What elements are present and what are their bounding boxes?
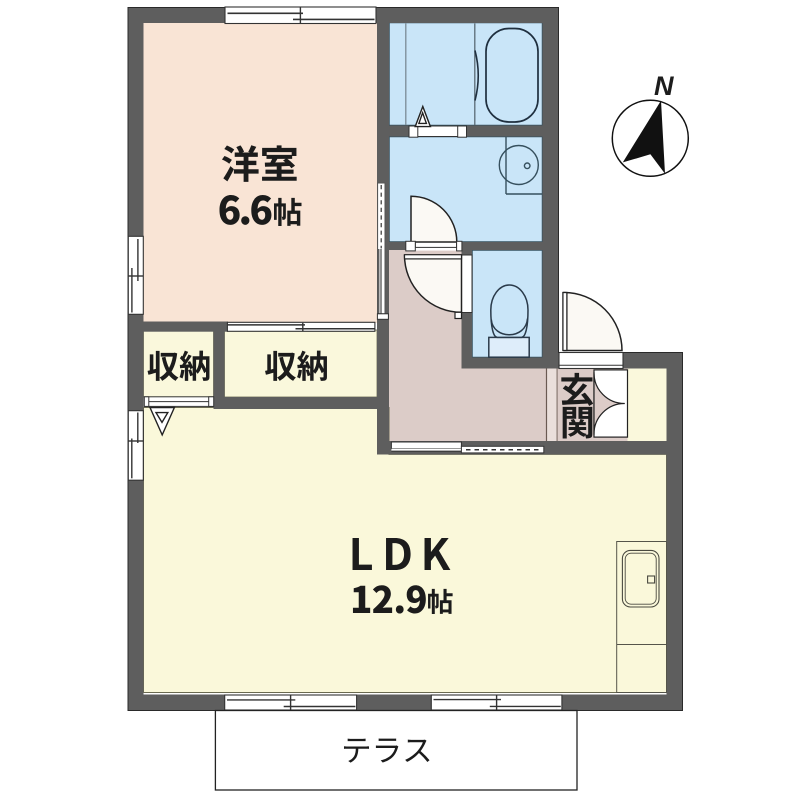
svg-text:N: N (654, 71, 674, 101)
